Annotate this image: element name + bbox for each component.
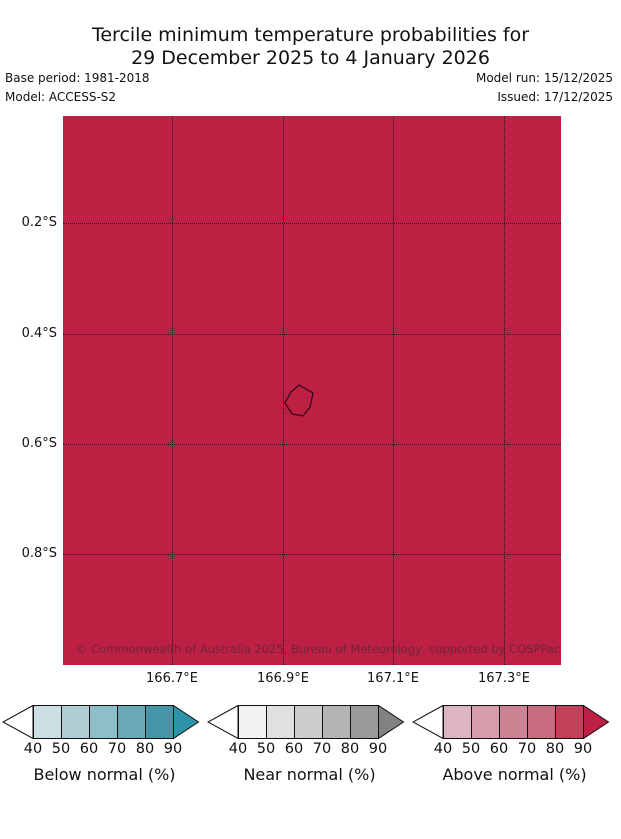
gridline-horizontal bbox=[63, 444, 561, 445]
colorbar-tick: 40 bbox=[24, 741, 42, 757]
figure: Tercile minimum temperature probabilitie… bbox=[0, 0, 621, 839]
gridline-vertical bbox=[393, 116, 394, 665]
figure-title: Tercile minimum temperature probabilitie… bbox=[0, 24, 621, 70]
gridline-vertical bbox=[504, 116, 505, 665]
y-axis-tick-label: 0.2°S bbox=[0, 215, 57, 231]
colorbar-tick: 50 bbox=[257, 741, 275, 757]
island-coastline-outline bbox=[285, 385, 313, 416]
colorbar-segment bbox=[323, 706, 351, 738]
colorbar-segment bbox=[500, 706, 528, 738]
colorbar-near-normal: 40 50 60 70 80 90 Near normal (%) bbox=[207, 705, 412, 795]
model-text: Model: ACCESS-S2 bbox=[5, 88, 116, 106]
colorbar-tick: 50 bbox=[52, 741, 70, 757]
colorbar-tick: 70 bbox=[313, 741, 331, 757]
colorbar-tick: 80 bbox=[341, 741, 359, 757]
colorbar-tick: 50 bbox=[462, 741, 480, 757]
colorbar-left-arrow-icon bbox=[207, 705, 239, 739]
colorbar-label: Above normal (%) bbox=[412, 765, 617, 784]
colorbar-label: Near normal (%) bbox=[207, 765, 412, 784]
y-axis-tick-label: 0.8°S bbox=[0, 546, 57, 562]
colorbar-segments bbox=[238, 705, 379, 739]
colorbar-tick: 60 bbox=[80, 741, 98, 757]
colorbar-right-arrow-icon bbox=[173, 705, 200, 739]
issued-text: Issued: 17/12/2025 bbox=[497, 88, 613, 106]
colorbar-segment bbox=[34, 706, 62, 738]
colorbar-right-arrow-icon bbox=[583, 705, 610, 739]
colorbar-above-normal: 40 50 60 70 80 90 Above normal (%) bbox=[412, 705, 617, 795]
base-period-text: Base period: 1981-2018 bbox=[5, 69, 150, 87]
colorbar-segment bbox=[528, 706, 556, 738]
colorbar-label: Below normal (%) bbox=[2, 765, 207, 784]
colorbar-segment bbox=[472, 706, 500, 738]
title-line-2: 29 December 2025 to 4 January 2026 bbox=[0, 47, 621, 70]
x-axis-tick-label: 166.7°E bbox=[146, 671, 198, 686]
colorbar-tick: 90 bbox=[164, 741, 182, 757]
title-line-1: Tercile minimum temperature probabilitie… bbox=[0, 24, 621, 47]
colorbar-segments bbox=[33, 705, 174, 739]
colorbar-segment bbox=[62, 706, 90, 738]
colorbar-segment bbox=[267, 706, 295, 738]
colorbar-below-normal: 40 50 60 70 80 90 Below normal (%) bbox=[2, 705, 207, 795]
colorbar-tick: 70 bbox=[108, 741, 126, 757]
colorbar-segment bbox=[444, 706, 472, 738]
colorbar-segment bbox=[90, 706, 118, 738]
colorbar-tick: 80 bbox=[546, 741, 564, 757]
colorbar-right-arrow-icon bbox=[378, 705, 405, 739]
colorbar-segment bbox=[556, 706, 583, 738]
colorbar-tick: 70 bbox=[518, 741, 536, 757]
colorbar-tick: 40 bbox=[229, 741, 247, 757]
colorbar-segment bbox=[118, 706, 146, 738]
gridline-horizontal bbox=[63, 334, 561, 335]
y-axis-tick-label: 0.4°S bbox=[0, 326, 57, 342]
gridline-horizontal bbox=[63, 554, 561, 555]
model-run-text: Model run: 15/12/2025 bbox=[476, 69, 613, 87]
colorbar-left-arrow-icon bbox=[412, 705, 444, 739]
x-axis-tick-label: 166.9°E bbox=[257, 671, 309, 686]
x-axis-tick-label: 167.3°E bbox=[478, 671, 530, 686]
colorbar-tick: 90 bbox=[369, 741, 387, 757]
colorbar-segment bbox=[239, 706, 267, 738]
x-axis-tick-label: 167.1°E bbox=[367, 671, 419, 686]
island-coastline bbox=[281, 380, 319, 422]
copyright-watermark: © Commonwealth of Australia 2025, Bureau… bbox=[76, 642, 560, 656]
colorbar-tick: 40 bbox=[434, 741, 452, 757]
gridline-horizontal bbox=[63, 223, 561, 224]
colorbar-segments bbox=[443, 705, 584, 739]
colorbar-segment bbox=[351, 706, 378, 738]
colorbar-segment bbox=[146, 706, 173, 738]
colorbar-tick: 90 bbox=[574, 741, 592, 757]
map-canvas: © Commonwealth of Australia 2025, Bureau… bbox=[63, 116, 561, 665]
colorbar-tick: 80 bbox=[136, 741, 154, 757]
colorbar-segment bbox=[295, 706, 323, 738]
y-axis-tick-label: 0.6°S bbox=[0, 436, 57, 452]
colorbar-tick: 60 bbox=[490, 741, 508, 757]
gridline-vertical bbox=[172, 116, 173, 665]
colorbar-left-arrow-icon bbox=[2, 705, 34, 739]
colorbar-tick: 60 bbox=[285, 741, 303, 757]
